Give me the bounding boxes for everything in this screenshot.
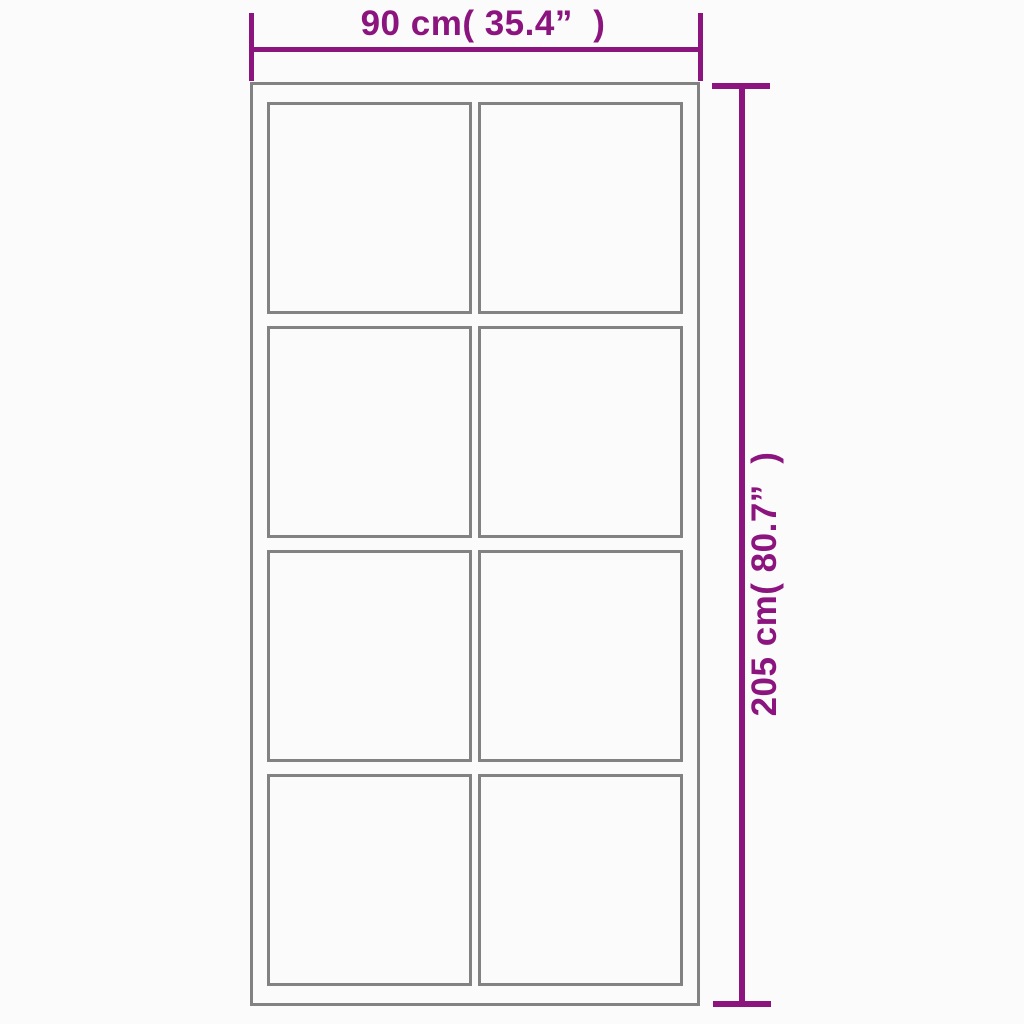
glass-panel bbox=[478, 550, 683, 762]
door-frame bbox=[250, 82, 700, 1006]
diagram-canvas: 90 cm( 35.4” ) 205 cm( 80.7” ) bbox=[0, 0, 1024, 1024]
width-dimension-tick-left bbox=[249, 13, 254, 81]
glass-panel bbox=[478, 102, 683, 314]
height-dimension-tick-bottom bbox=[713, 1001, 771, 1007]
width-dimension-tick-right bbox=[698, 13, 703, 81]
width-dimension-label: 90 cm( 35.4” ) bbox=[361, 4, 606, 44]
glass-panel bbox=[267, 550, 472, 762]
width-dimension-line bbox=[250, 47, 703, 52]
height-dimension-tick-top bbox=[712, 83, 770, 89]
glass-panel bbox=[267, 326, 472, 538]
height-dimension-label: 205 cm( 80.7” ) bbox=[745, 452, 785, 717]
glass-panel bbox=[267, 102, 472, 314]
glass-panel bbox=[478, 774, 683, 986]
glass-panel bbox=[478, 326, 683, 538]
glass-panel bbox=[267, 774, 472, 986]
glass-panel-grid bbox=[267, 102, 683, 986]
